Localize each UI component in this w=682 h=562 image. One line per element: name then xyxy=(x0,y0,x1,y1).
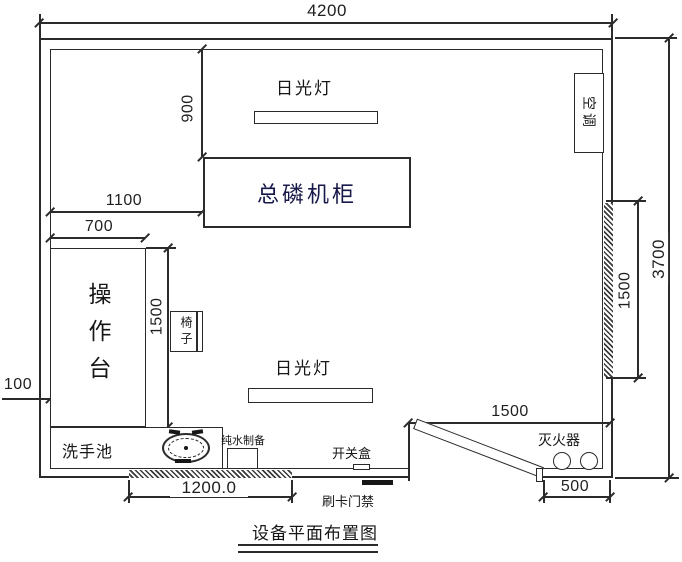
chair-label: 椅子 xyxy=(178,316,195,348)
lamp-top xyxy=(254,111,378,124)
sink-drain-dot xyxy=(184,446,188,450)
extension-line xyxy=(39,14,41,38)
dim-line-room-height xyxy=(668,38,670,478)
dim-label-door-side: 500 xyxy=(553,479,597,496)
phosphorus-cabinet-label: 总磷机柜 xyxy=(257,177,357,209)
extension-line xyxy=(606,377,646,379)
dim-line-door-area xyxy=(408,422,610,424)
extension-line xyxy=(146,247,176,249)
dim-line-left-gap xyxy=(2,398,50,400)
card-access-label: 刷卡门禁 xyxy=(322,491,374,510)
door-hinge-post xyxy=(536,468,543,482)
air-conditioner-label: 空调 xyxy=(579,96,599,130)
floor-plan-canvas: 4200 3700 900 1100 700 1500 100 1200.0 1… xyxy=(0,0,682,562)
dim-label-worktable-length: 1500 xyxy=(150,293,167,339)
worktable-label: 操作台 xyxy=(81,282,115,393)
title-underline xyxy=(238,544,378,546)
air-conditioner: 空调 xyxy=(574,73,604,153)
fire-extinguisher-2 xyxy=(580,452,598,470)
dim-line-worktable-width xyxy=(50,237,145,239)
lamp-bottom xyxy=(248,388,373,403)
dim-label-left-gap: 100 xyxy=(0,377,36,394)
dim-line-door-side xyxy=(543,496,610,498)
dim-label-worktable-width: 700 xyxy=(76,219,122,236)
pure-water-unit xyxy=(227,448,258,469)
sink-fixture-mark xyxy=(175,459,191,463)
dim-line-room-width xyxy=(39,22,613,24)
dim-line-worktable-length xyxy=(167,248,169,427)
card-access-reader xyxy=(362,480,393,485)
extension-line xyxy=(611,14,613,38)
extension-line xyxy=(543,480,545,503)
fire-extinguisher-1 xyxy=(553,452,571,470)
pure-water-label: 纯水制备 xyxy=(221,432,265,448)
lamp-top-label: 日光灯 xyxy=(276,74,340,99)
dim-label-room-height: 3700 xyxy=(650,233,668,285)
dim-label-room-width: 4200 xyxy=(302,2,352,20)
lamp-bottom-label: 日光灯 xyxy=(275,354,339,379)
extension-line xyxy=(408,423,410,481)
bottom-window-hatch xyxy=(129,470,292,478)
right-window-hatch xyxy=(604,203,613,378)
dim-label-bottom-window: 1200.0 xyxy=(170,479,248,497)
phosphorus-cabinet: 总磷机柜 xyxy=(203,157,411,228)
switch-box xyxy=(353,464,370,470)
title-underline xyxy=(238,551,378,553)
dim-line-right-window xyxy=(637,201,639,378)
dim-line-lamp-offset xyxy=(201,49,203,157)
fire-extinguisher-label: 灭火器 xyxy=(538,430,580,450)
dim-label-door-area: 1500 xyxy=(484,404,536,421)
extension-line xyxy=(609,480,611,503)
dim-label-right-window: 1500 xyxy=(618,267,635,313)
wash-basin-label: 洗手池 xyxy=(62,438,113,462)
chair: 椅子 xyxy=(170,311,203,352)
dim-label-cabinet-left: 1100 xyxy=(96,193,152,210)
chair-edge-line xyxy=(196,312,198,351)
dim-label-lamp-offset: 900 xyxy=(181,86,198,130)
switch-box-label: 开关盒 xyxy=(332,443,371,462)
worktable: 操作台 xyxy=(50,248,146,427)
drawing-title: 设备平面布置图 xyxy=(250,519,380,544)
extension-line xyxy=(291,480,293,503)
extension-line xyxy=(128,480,130,503)
dim-line-cabinet-left xyxy=(50,211,202,213)
extension-line xyxy=(606,200,646,202)
